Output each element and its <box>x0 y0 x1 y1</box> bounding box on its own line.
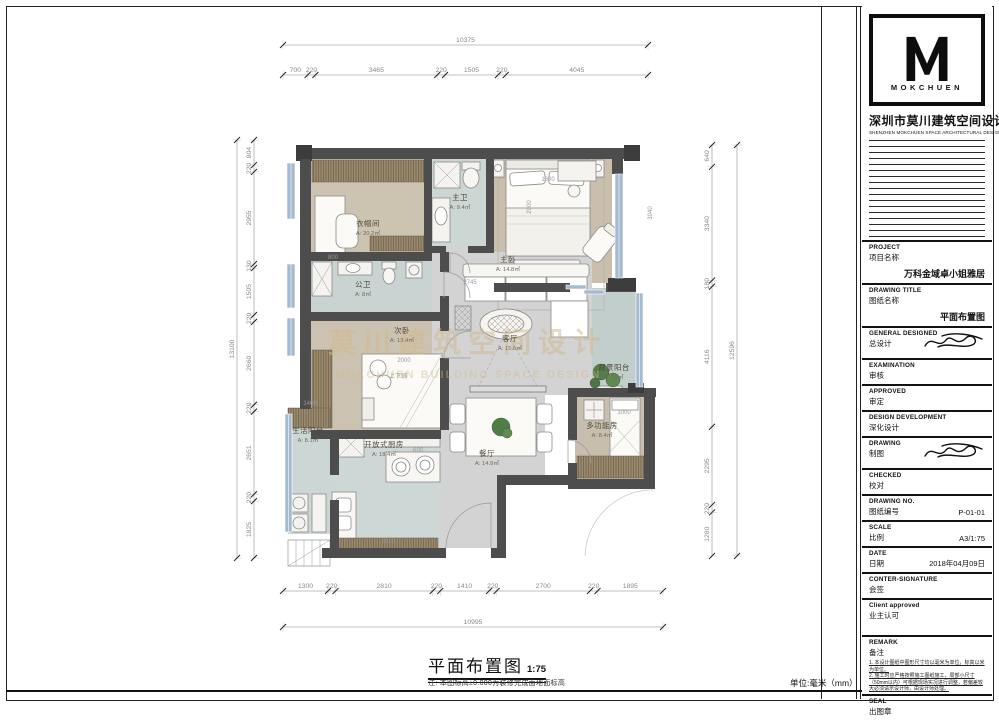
frame-bottom-rule <box>6 690 992 692</box>
sheet-border <box>6 6 994 701</box>
drawing-sheet: { "sheet": { "company": { "logo_letter":… <box>0 0 999 706</box>
row-label-cn: 深化设计 <box>869 422 899 433</box>
row-label-cn: 审核 <box>869 370 884 381</box>
titleblock-row-12: Client approved业主认可 <box>862 598 992 635</box>
titleblock-row-0: PROJECT项目名称万科金域卓小姐雅居 <box>862 240 992 283</box>
row-label-cn: 图纸编号 <box>869 506 899 517</box>
frame-divider-1 <box>821 6 822 699</box>
logo-word: MOKCHUEN <box>891 83 963 92</box>
ruled-lines <box>869 140 985 240</box>
row-label-cn: 校对 <box>869 480 884 491</box>
row-label-cn: 审定 <box>869 396 884 407</box>
row-label-cn: 制图 <box>869 448 884 459</box>
company-name-en: SHENZHEN MOKCHUEN SPACE ARCHITECTURAL DE… <box>869 130 985 135</box>
logo-m-icon <box>889 29 965 81</box>
row-label-en: Client approved <box>869 602 985 609</box>
frame-divider-2 <box>856 6 857 699</box>
title-block-rows: PROJECT项目名称万科金域卓小姐雅居DRAWING TITLE图纸名称平面布… <box>862 240 992 635</box>
remark-label-cn: 备注 <box>869 647 884 658</box>
row-label-en: SCALE <box>869 524 985 531</box>
row-value: 平面布置图 <box>869 310 985 323</box>
row-label-cn: 项目名称 <box>869 252 899 263</box>
titleblock-row-6: DRAWING制图 <box>862 436 992 468</box>
footer-unit: 单位:毫米（mm） <box>790 677 858 689</box>
titleblock-row-2: GENERAL DESIGNED总设计 <box>862 326 992 358</box>
row-label-en: APPROVED <box>869 388 985 395</box>
footer-note: 注: 本图标高±0.000为装修完成面地面标高 <box>428 678 565 688</box>
title-block-header: MOKCHUEN 深圳市莫川建筑空间设计 SHENZHEN MOKCHUEN S… <box>862 6 992 240</box>
row-value: A3/1:75 <box>959 534 985 543</box>
company-logo: MOKCHUEN <box>869 14 985 106</box>
remark-note: 2. 施工时应严格按照施工图纸施工，局部小尺寸（50mm以内）可根据现场实况进行… <box>869 673 985 693</box>
titleblock-row-4: APPROVED审定 <box>862 384 992 410</box>
titleblock-row-8: DRAWING NO.图纸编号P-01-01 <box>862 494 992 520</box>
row-label-en: CHECKED <box>869 472 985 479</box>
signature-scribble <box>922 330 988 354</box>
titleblock-row-3: EXAMINATION审核 <box>862 358 992 384</box>
row-label-en: CONTER-SIGNATURE <box>869 576 985 583</box>
footer-scale: 1:75 <box>527 664 546 675</box>
titleblock-row-11: CONTER-SIGNATURE会签 <box>862 572 992 598</box>
row-label-en: DRAWING NO. <box>869 498 985 505</box>
row-label-en: PROJECT <box>869 244 985 251</box>
row-label-cn: 业主认可 <box>869 610 899 621</box>
remark-notes: 1. 本设计图纸中图形尺寸均以毫米为单位，标高以米为单位。2. 施工时应严格按照… <box>869 660 985 693</box>
title-block: MOKCHUEN 深圳市莫川建筑空间设计 SHENZHEN MOKCHUEN S… <box>862 6 992 699</box>
row-value: 2018年04月09日 <box>929 558 985 569</box>
titleblock-row-9: SCALE比例A3/1:75 <box>862 520 992 546</box>
row-label-en: DESIGN DEVELOPMENT <box>869 414 985 421</box>
row-label-cn: 图纸名称 <box>869 295 899 306</box>
remark-note: 1. 本设计图纸中图形尺寸均以毫米为单位，标高以米为单位。 <box>869 660 985 673</box>
seal-label-cn: 出图章 <box>869 706 892 717</box>
remark-label-en: REMARK <box>869 639 985 646</box>
titleblock-row-7: CHECKED校对 <box>862 468 992 494</box>
row-value: 万科金域卓小姐雅居 <box>869 267 985 280</box>
frame-divider-3 <box>860 6 861 699</box>
row-label-en: DRAWING TITLE <box>869 287 985 294</box>
signature-scribble <box>922 440 988 464</box>
seal-label-en: SEAL <box>869 698 985 705</box>
remark-section: REMARK 备注 1. 本设计图纸中图形尺寸均以毫米为单位，标高以米为单位。2… <box>862 635 992 694</box>
company-name-cn: 深圳市莫川建筑空间设计 <box>869 112 985 129</box>
row-label-en: DATE <box>869 550 985 557</box>
row-label-cn: 比例 <box>869 532 884 543</box>
footer-title-text: 平面布置图 <box>428 652 523 677</box>
row-value: P-01-01 <box>958 508 985 517</box>
titleblock-row-1: DRAWING TITLE图纸名称平面布置图 <box>862 283 992 326</box>
titleblock-row-5: DESIGN DEVELOPMENT深化设计 <box>862 410 992 436</box>
seal-section: SEAL 出图章 <box>862 694 992 720</box>
titleblock-row-10: DATE日期2018年04月09日 <box>862 546 992 572</box>
row-label-cn: 会签 <box>869 584 884 595</box>
row-label-cn: 日期 <box>869 558 884 569</box>
row-label-cn: 总设计 <box>869 338 892 349</box>
row-label-en: EXAMINATION <box>869 362 985 369</box>
